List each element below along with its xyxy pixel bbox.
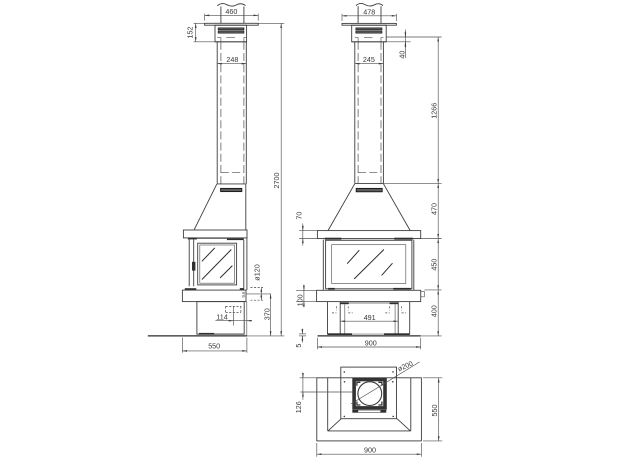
svg-text:248: 248 [226, 55, 238, 64]
svg-text:478: 478 [363, 7, 375, 16]
svg-text:126: 126 [294, 401, 303, 413]
svg-text:ø120: ø120 [252, 264, 261, 280]
svg-text:370: 370 [262, 308, 271, 320]
svg-text:491: 491 [364, 313, 376, 322]
svg-text:114: 114 [216, 312, 227, 321]
svg-text:460: 460 [225, 7, 237, 16]
svg-text:1266: 1266 [430, 103, 439, 119]
svg-text:2700: 2700 [272, 173, 281, 189]
svg-text:9.6: 9.6 [241, 291, 246, 298]
svg-text:900: 900 [364, 446, 376, 455]
svg-text:40: 40 [398, 51, 407, 59]
svg-text:100: 100 [295, 294, 304, 306]
svg-text:152: 152 [186, 27, 195, 39]
svg-text:400: 400 [430, 305, 439, 317]
svg-text:245: 245 [363, 55, 375, 64]
svg-text:70: 70 [295, 212, 304, 220]
svg-text:900: 900 [365, 338, 377, 347]
svg-text:470: 470 [430, 203, 439, 215]
svg-text:550: 550 [430, 405, 439, 417]
svg-text:450: 450 [430, 259, 439, 271]
svg-text:5: 5 [294, 344, 303, 348]
svg-text:550: 550 [208, 341, 220, 350]
